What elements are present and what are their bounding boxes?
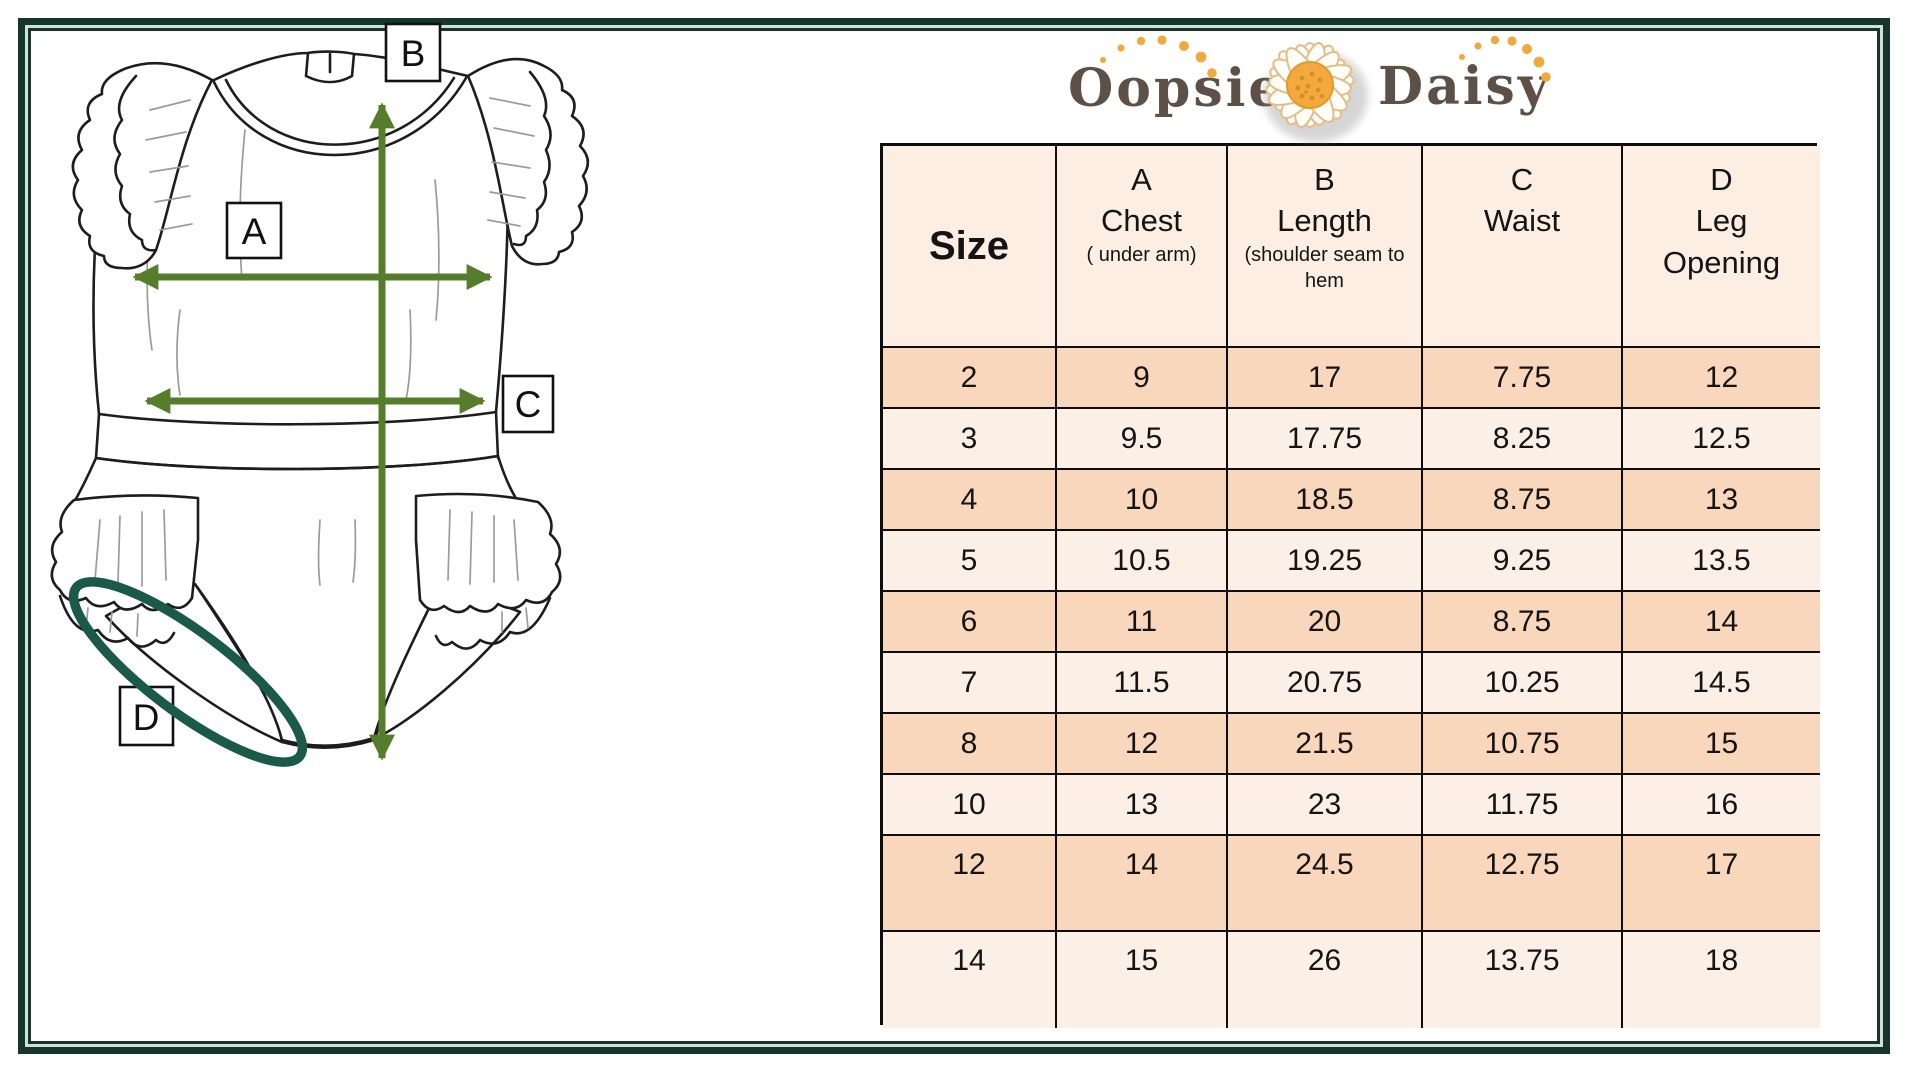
column-header-label: Chest: [1101, 200, 1182, 242]
table-cell-size: 2: [883, 348, 1057, 409]
table-cell-leg: 15: [1623, 714, 1820, 775]
column-letter: A: [1131, 160, 1152, 200]
size-chart-page: A B C D Oopsie Daisy: [0, 0, 1920, 1080]
table-cell-length: 20: [1228, 592, 1423, 653]
column-header-note: ( under arm): [1086, 242, 1196, 268]
table-cell-length: 18.5: [1228, 470, 1423, 531]
column-header-size: Size: [883, 146, 1057, 348]
svg-text:C: C: [515, 384, 542, 425]
table-cell-length: 20.75: [1228, 653, 1423, 714]
table-cell-chest: 9.5: [1057, 409, 1228, 470]
table-cell-waist: 7.75: [1423, 348, 1623, 409]
column-header-chest: A Chest ( under arm): [1057, 146, 1228, 348]
table-cell-chest: 11.5: [1057, 653, 1228, 714]
column-header-label: Leg Opening: [1663, 200, 1780, 284]
table-cell-length: 19.25: [1228, 531, 1423, 592]
svg-text:A: A: [242, 211, 267, 252]
table-cell-size: 7: [883, 653, 1057, 714]
table-cell-waist: 8.75: [1423, 592, 1623, 653]
table-cell-chest: 15: [1057, 932, 1228, 1028]
column-header-label: Size: [929, 224, 1009, 269]
logo-word-oopsie: Oopsie: [1068, 58, 1284, 119]
table-cell-size: 10: [883, 775, 1057, 836]
table-cell-length: 21.5: [1228, 714, 1423, 775]
table-cell-waist: 10.25: [1423, 653, 1623, 714]
column-letter: C: [1511, 160, 1533, 200]
table-cell-leg: 12.5: [1623, 409, 1820, 470]
table-cell-length: 17.75: [1228, 409, 1423, 470]
table-cell-leg: 14.5: [1623, 653, 1820, 714]
table-cell-chest: 10.5: [1057, 531, 1228, 592]
column-letter: D: [1710, 160, 1732, 200]
column-header-leg-opening: D Leg Opening: [1623, 146, 1820, 348]
table-cell-chest: 11: [1057, 592, 1228, 653]
table-cell-leg: 14: [1623, 592, 1820, 653]
table-cell-size: 3: [883, 409, 1057, 470]
table-cell-waist: 11.75: [1423, 775, 1623, 836]
table-cell-length: 24.5: [1228, 836, 1423, 932]
table-cell-size: 14: [883, 932, 1057, 1028]
table-cell-waist: 8.75: [1423, 470, 1623, 531]
column-header-waist: C Waist: [1423, 146, 1623, 348]
table-cell-leg: 16: [1623, 775, 1820, 836]
table-cell-waist: 8.25: [1423, 409, 1623, 470]
table-cell-leg: 17: [1623, 836, 1820, 932]
column-header-label: Length: [1277, 200, 1372, 242]
table-cell-chest: 9: [1057, 348, 1228, 409]
column-letter: B: [1314, 160, 1335, 200]
garment-diagram: A B C D: [0, 0, 800, 950]
table-cell-size: 8: [883, 714, 1057, 775]
column-header-length: B Length (shoulder seam to hem: [1228, 146, 1423, 348]
table-cell-waist: 12.75: [1423, 836, 1623, 932]
table-cell-size: 5: [883, 531, 1057, 592]
table-cell-chest: 14: [1057, 836, 1228, 932]
table-cell-leg: 12: [1623, 348, 1820, 409]
table-cell-length: 23: [1228, 775, 1423, 836]
table-cell-waist: 9.25: [1423, 531, 1623, 592]
table-cell-waist: 10.75: [1423, 714, 1623, 775]
table-cell-length: 17: [1228, 348, 1423, 409]
table-cell-leg: 13: [1623, 470, 1820, 531]
table-cell-waist: 13.75: [1423, 932, 1623, 1028]
table-cell-chest: 13: [1057, 775, 1228, 836]
size-table: Size A Chest ( under arm) B Length (shou…: [880, 143, 1817, 1025]
table-cell-chest: 12: [1057, 714, 1228, 775]
table-cell-size: 6: [883, 592, 1057, 653]
column-header-note: (shoulder seam to hem: [1240, 242, 1410, 294]
logo-word-daisy: Daisy: [1378, 56, 1551, 117]
label-A: A: [227, 203, 281, 258]
label-B: B: [386, 24, 440, 81]
table-cell-size: 12: [883, 836, 1057, 932]
svg-text:B: B: [401, 33, 426, 74]
table-cell-leg: 18: [1623, 932, 1820, 1028]
daisy-center: [1287, 62, 1333, 108]
label-C: C: [503, 376, 553, 432]
column-header-label: Waist: [1484, 200, 1560, 242]
table-cell-length: 26: [1228, 932, 1423, 1028]
table-cell-size: 4: [883, 470, 1057, 531]
table-cell-leg: 13.5: [1623, 531, 1820, 592]
table-cell-chest: 10: [1057, 470, 1228, 531]
